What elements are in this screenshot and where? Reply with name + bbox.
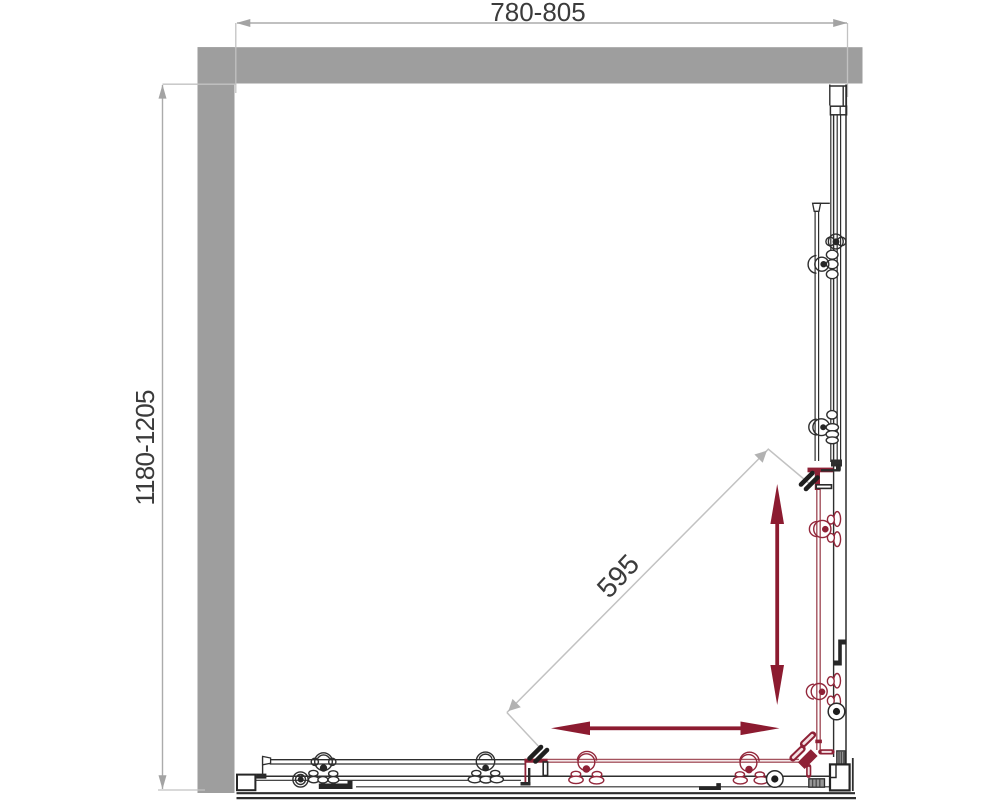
- svg-text:1180-1205: 1180-1205: [130, 390, 160, 506]
- svg-text:595: 595: [591, 548, 646, 603]
- svg-text:780-805: 780-805: [490, 0, 585, 27]
